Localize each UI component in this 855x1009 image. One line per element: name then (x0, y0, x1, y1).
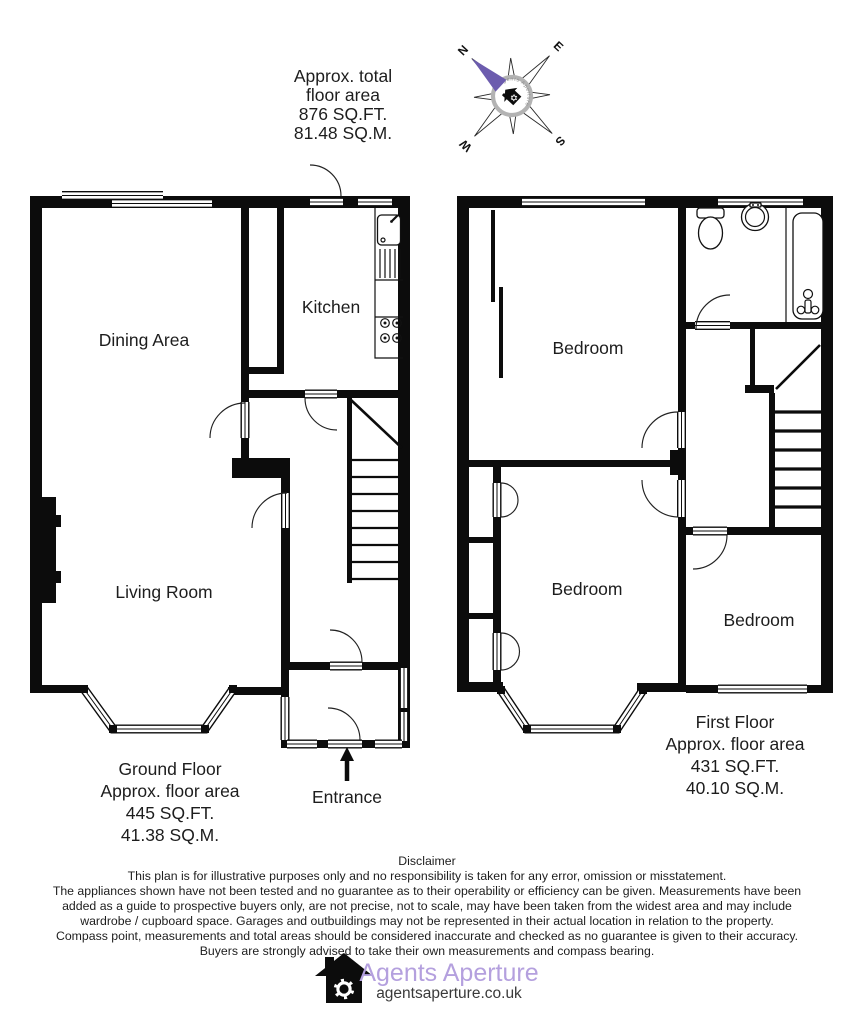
caption-line: Approx. floor area (665, 734, 804, 754)
floorplan-canvas: Approx. total floor area 876 SQ.FT. 81.4… (0, 0, 855, 1009)
wall (730, 322, 833, 329)
total-area-line: floor area (306, 85, 380, 105)
compass-rose-icon: Agents Aperture N E S W (407, 0, 617, 201)
room-label-bedroom2: Bedroom (551, 579, 622, 599)
room-label-kitchen: Kitchen (302, 297, 360, 317)
disclaimer-block: Disclaimer This plan is for illustrative… (53, 854, 801, 958)
wall (241, 208, 249, 402)
caption-line: Approx. floor area (100, 781, 239, 801)
wall (277, 208, 284, 374)
cupboard-shelf (469, 537, 493, 543)
wall (678, 527, 686, 685)
first-staircase (775, 345, 821, 507)
door-arc (210, 403, 245, 438)
room-label-dining: Dining Area (99, 330, 190, 350)
wall (493, 467, 501, 483)
door-arc (310, 165, 341, 196)
total-area-caption: Approx. total floor area 876 SQ.FT. 81.4… (294, 66, 392, 143)
living-room-door (252, 493, 287, 528)
entrance-label: Entrance (312, 787, 382, 807)
wall (30, 196, 42, 693)
fireplace-nub (56, 515, 61, 527)
wall (727, 527, 821, 535)
cupboard-doors (497, 483, 518, 517)
bay-window (497, 686, 647, 733)
door-arc (330, 630, 362, 662)
wall (745, 385, 774, 393)
compass-e-label: E (551, 38, 566, 54)
entrance-marker: Entrance (312, 747, 382, 807)
bedroom2-door (642, 480, 682, 517)
wall (362, 662, 403, 670)
door-arc (642, 412, 678, 448)
ground-floor-plan: Dining Area Kitchen Living Room Ground F… (30, 165, 410, 845)
wall (241, 390, 305, 398)
door-arc (328, 708, 360, 740)
dining-door (210, 402, 245, 438)
brand-name: Agents Aperture (359, 959, 538, 987)
first-floor-caption: First Floor Approx. floor area 431 SQ.FT… (665, 712, 804, 798)
disclaimer-line: Buyers are strongly advised to take thei… (200, 944, 655, 958)
bay-window (80, 685, 237, 733)
ground-staircase (347, 398, 402, 583)
fireplace (42, 497, 56, 603)
wall (30, 685, 84, 693)
first-floor-plan: Bedroom Bedroom Bedroom First Floor Appr… (457, 196, 833, 798)
wall (249, 367, 279, 374)
stair-rail (347, 398, 352, 583)
ground-floor-caption: Ground Floor Approx. floor area 445 SQ.F… (100, 759, 239, 845)
disclaimer-title: Disclaimer (398, 854, 455, 868)
front-door (328, 708, 362, 744)
disclaimer-line: Compass point, measurements and total ar… (56, 929, 798, 943)
footer-logo: Agents Aperture agentsaperture.co.uk (315, 953, 539, 1003)
wall (281, 478, 290, 493)
sink-icon (378, 215, 401, 245)
caption-line: 41.38 SQ.M. (121, 825, 219, 845)
wall (750, 328, 755, 385)
floorplan-page: Approx. total floor area 876 SQ.FT. 81.4… (0, 0, 855, 1009)
wall (457, 196, 469, 692)
door-arc (305, 398, 337, 430)
compass-n-label: N (455, 42, 471, 58)
caption-line: 40.10 SQ.M. (686, 778, 784, 798)
cupboard-shelf (469, 613, 493, 619)
kitchen-hall-door (305, 394, 337, 430)
chimney-bar (491, 210, 495, 302)
wall (686, 322, 695, 329)
chimney-bar (499, 287, 503, 378)
stair-diagonal (351, 400, 402, 448)
wall (281, 528, 290, 662)
caption-line: 431 SQ.FT. (691, 756, 780, 776)
total-area-line: 81.48 SQ.M. (294, 123, 392, 143)
disclaimer-line: added as a guide to prospective buyers o… (62, 899, 792, 913)
wall (678, 208, 686, 412)
caption-line: 445 SQ.FT. (126, 803, 215, 823)
total-area-line: Approx. total (294, 66, 392, 86)
toilet-icon (697, 208, 724, 249)
wall (670, 450, 678, 475)
bathroom-door (695, 295, 730, 329)
bathroom-fixtures (697, 203, 823, 319)
brand-website: agentsaperture.co.uk (376, 985, 522, 1002)
cupboard-doors (497, 633, 520, 670)
disclaimer-line: The appliances shown have not been teste… (53, 884, 801, 898)
entrance-arrow-icon (340, 747, 354, 761)
bedroom3-door (693, 531, 727, 569)
caption-line: First Floor (696, 712, 775, 732)
drainer-icon (380, 249, 400, 278)
room-label-bedroom3: Bedroom (723, 610, 794, 630)
total-area-line: 876 SQ.FT. (299, 104, 388, 124)
wall (457, 682, 503, 692)
wall (241, 438, 249, 458)
hall-porch-door (330, 630, 362, 666)
wall (493, 517, 501, 633)
compass-w-label: W (456, 136, 474, 154)
bedroom1-door (642, 412, 682, 448)
bathtub-icon (793, 213, 823, 319)
sink-icon (742, 203, 769, 231)
disclaimer-line: This plan is for illustrative purposes o… (128, 869, 727, 883)
chimney-stub (232, 458, 290, 478)
caption-line: Ground Floor (118, 759, 221, 779)
wall (678, 517, 686, 527)
compass-s-label: S (552, 133, 568, 148)
door-arc (642, 480, 678, 517)
room-label-bedroom1: Bedroom (552, 338, 623, 358)
wall (493, 670, 501, 682)
stair-diagonal (776, 345, 820, 389)
door-arc (693, 535, 727, 569)
fireplace-nub (56, 571, 61, 583)
wall (337, 390, 398, 398)
room-label-living: Living Room (115, 582, 212, 602)
disclaimer-line: wardrobe / cupboard space. Garages and o… (79, 914, 774, 928)
first-floor-windows (497, 202, 807, 733)
wall (457, 460, 686, 467)
wall (678, 448, 686, 480)
wall (281, 662, 330, 670)
wall (769, 393, 775, 527)
wall (686, 527, 693, 535)
